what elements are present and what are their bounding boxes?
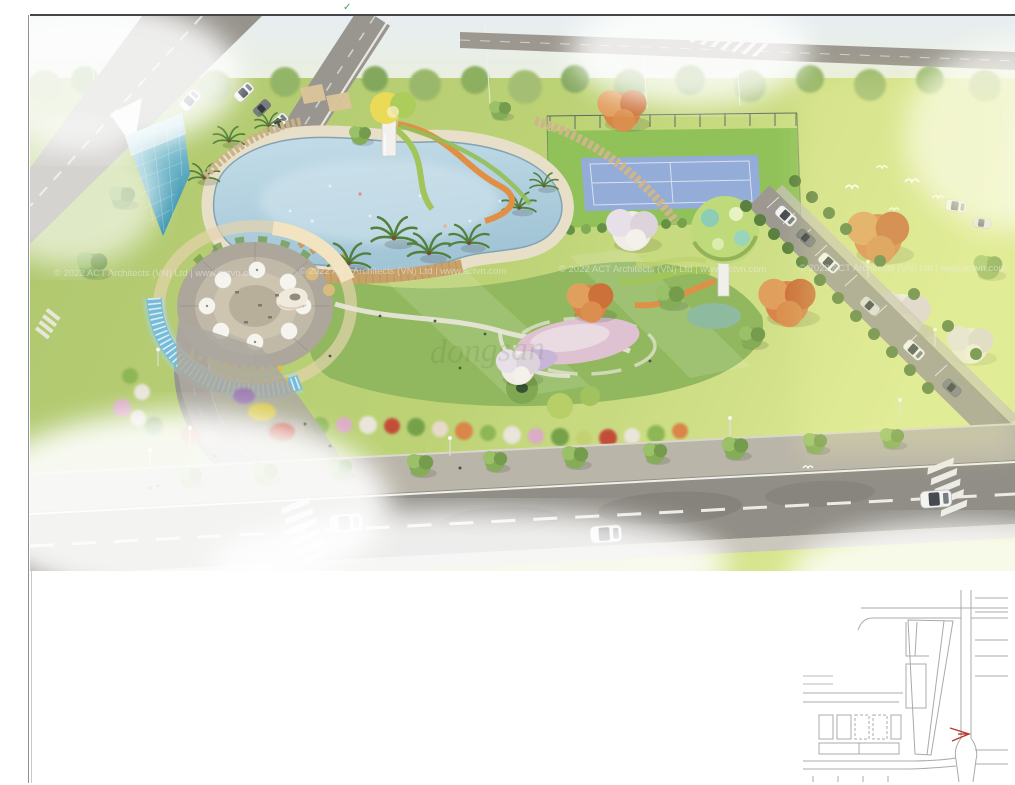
keymap-road-bottom xyxy=(803,758,956,769)
keymap-road-left xyxy=(803,693,903,702)
location-key-map xyxy=(803,590,1008,782)
presentation-page: ✓ xyxy=(0,0,1015,785)
park-aerial-rendering: © 2022 ACT Architects (VN) Ltd | www.act… xyxy=(30,14,1015,571)
watermark-text-4: © 2022 ACT Architects (VN) Ltd | www.act… xyxy=(799,263,1006,274)
watermark-text-2: © 2022 ACT Architects (VN) Ltd | www.act… xyxy=(299,266,506,277)
watermark-text-1: © 2022 ACT Architects (VN) Ltd | www.act… xyxy=(54,268,261,279)
keymap-road-vertical-left xyxy=(955,590,961,782)
cloud-fog-overlays xyxy=(30,16,1015,571)
keymap-road-vertical-right xyxy=(971,590,977,782)
keymap-project-parcel xyxy=(908,620,953,755)
small-green-mark: ✓ xyxy=(343,3,352,12)
keymap-road-top xyxy=(858,608,1008,630)
watermark-text-3: © 2022 ACT Architects (VN) Ltd | www.act… xyxy=(559,264,766,275)
keymap-site-marker-arrow xyxy=(950,728,969,741)
watermark-center: dongsan xyxy=(429,330,545,371)
